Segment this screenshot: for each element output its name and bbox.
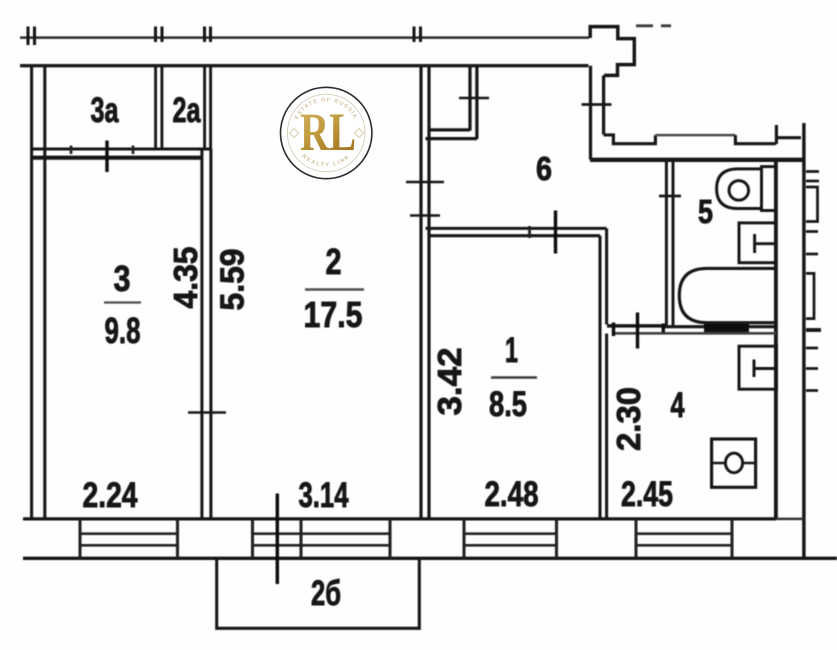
svg-text:2: 2 <box>326 241 342 282</box>
svg-text:1: 1 <box>505 331 518 370</box>
svg-text:2.48: 2.48 <box>485 475 539 514</box>
svg-text:2.24: 2.24 <box>83 476 138 515</box>
svg-text:3: 3 <box>114 258 131 299</box>
svg-text:4: 4 <box>671 386 685 425</box>
svg-text:2б: 2б <box>311 574 341 613</box>
svg-text:17.5: 17.5 <box>304 294 363 335</box>
svg-text:2.30: 2.30 <box>610 387 647 451</box>
svg-text:2а: 2а <box>173 91 201 130</box>
svg-text:6: 6 <box>536 150 552 187</box>
svg-text:5.59: 5.59 <box>214 249 251 311</box>
svg-text:8.5: 8.5 <box>489 385 527 424</box>
svg-text:5: 5 <box>698 193 713 230</box>
svg-text:RL: RL <box>300 102 356 162</box>
svg-text:3.14: 3.14 <box>299 476 349 515</box>
svg-text:3а: 3а <box>91 91 119 130</box>
svg-text:2.45: 2.45 <box>621 475 673 514</box>
svg-text:9.8: 9.8 <box>105 310 141 351</box>
svg-text:3.42: 3.42 <box>431 348 468 416</box>
svg-text:4.35: 4.35 <box>167 247 204 309</box>
